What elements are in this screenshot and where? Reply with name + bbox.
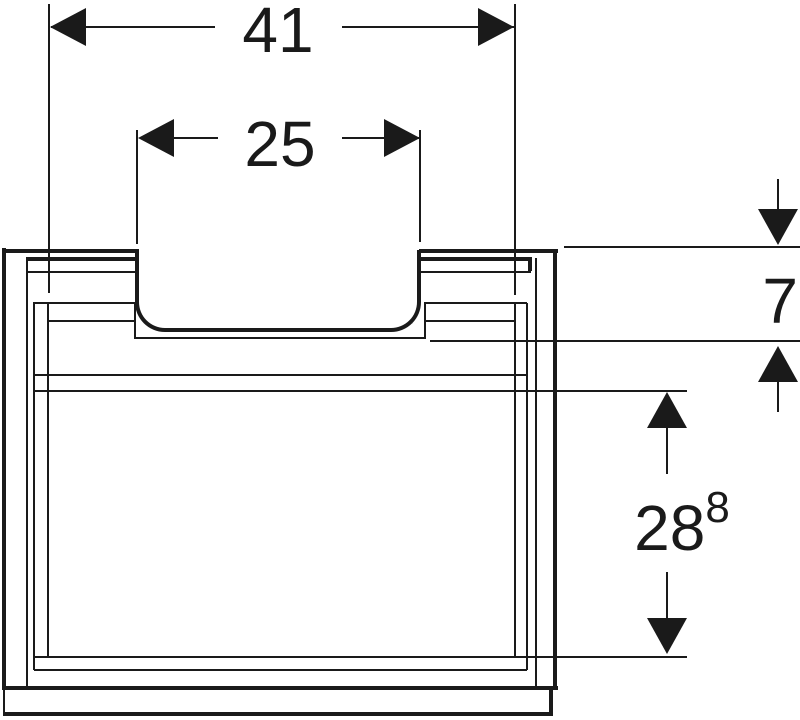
dimension-drawing: 41 25 7 288 [0,0,800,720]
plinth-bottom-edge [3,712,553,716]
dim-recess-width-label: 25 [210,108,350,180]
dim-drawer-height-label: 288 [612,492,752,564]
cabinet-side-wall-left [2,248,6,690]
dim-drawer-height-arrow-down-icon [647,618,687,654]
dim-recess-width-arrow-left-icon [138,119,174,157]
dim-recess-width-arrow-right-icon [384,119,420,157]
cabinet-top-edge-right [419,249,558,253]
upper-drawer-inner-line-left [48,320,135,322]
drawer-front-inner-edge-right [514,304,516,658]
handle-recess-outline [134,302,426,339]
cabinet-top-edge-left [2,249,139,253]
cabinet-top-inner-edge-right [421,257,532,261]
dim-drawer-height-arrow-up-icon [647,392,687,428]
dim-drawer-height-arrow-bottom-tail [666,572,668,619]
top-rail-line-left [27,271,136,273]
dim-recess-width-extension-line-left [136,130,138,244]
dim-apron-height-reference-line-top [564,246,800,248]
dim-drawer-height-value: 28 [634,492,705,564]
lower-drawer-bottom-inner-line [34,656,687,658]
upper-drawer-top-edge-right [424,302,527,304]
drawer-front-edge-left [33,303,35,670]
dim-recess-width-extension-line-right [419,130,421,242]
lower-drawer-bottom-edge [34,669,527,671]
cabinet-bottom-edge [2,686,558,690]
carcass-inner-face-left [26,257,28,686]
carcass-inner-face-right [535,258,537,686]
cabinet-side-wall-right [553,249,557,690]
dim-apron-height-arrow-up-icon [758,346,798,382]
drawer-divider-lower-line [33,390,687,392]
dim-overall-width-label: 41 [212,0,344,66]
top-rail-line-right [421,271,531,273]
plinth-edge-left [3,690,5,714]
cabinet-top-inner-edge-left [28,257,135,261]
dim-apron-height-arrow-top-tail [777,179,779,211]
dim-drawer-height-decimal-superscript: 8 [705,483,729,532]
cabinet-top-inner-joint-stub [528,257,532,271]
dim-overall-width-arrow-right-icon [478,8,514,46]
dim-drawer-height-arrow-top-tail [666,427,668,474]
dim-apron-height-label: 7 [710,265,798,337]
drawer-front-inner-edge-left [47,303,49,658]
upper-drawer-inner-line-right [424,320,514,322]
dim-apron-height-arrow-down-icon [758,209,798,245]
dim-apron-height-reference-line-bottom [430,340,800,342]
dim-overall-width-arrow-left-icon [50,8,86,46]
drawer-divider-upper-line [33,374,527,376]
dim-apron-height-arrow-bottom-tail [777,381,779,412]
drawer-front-edge-right [526,303,528,670]
